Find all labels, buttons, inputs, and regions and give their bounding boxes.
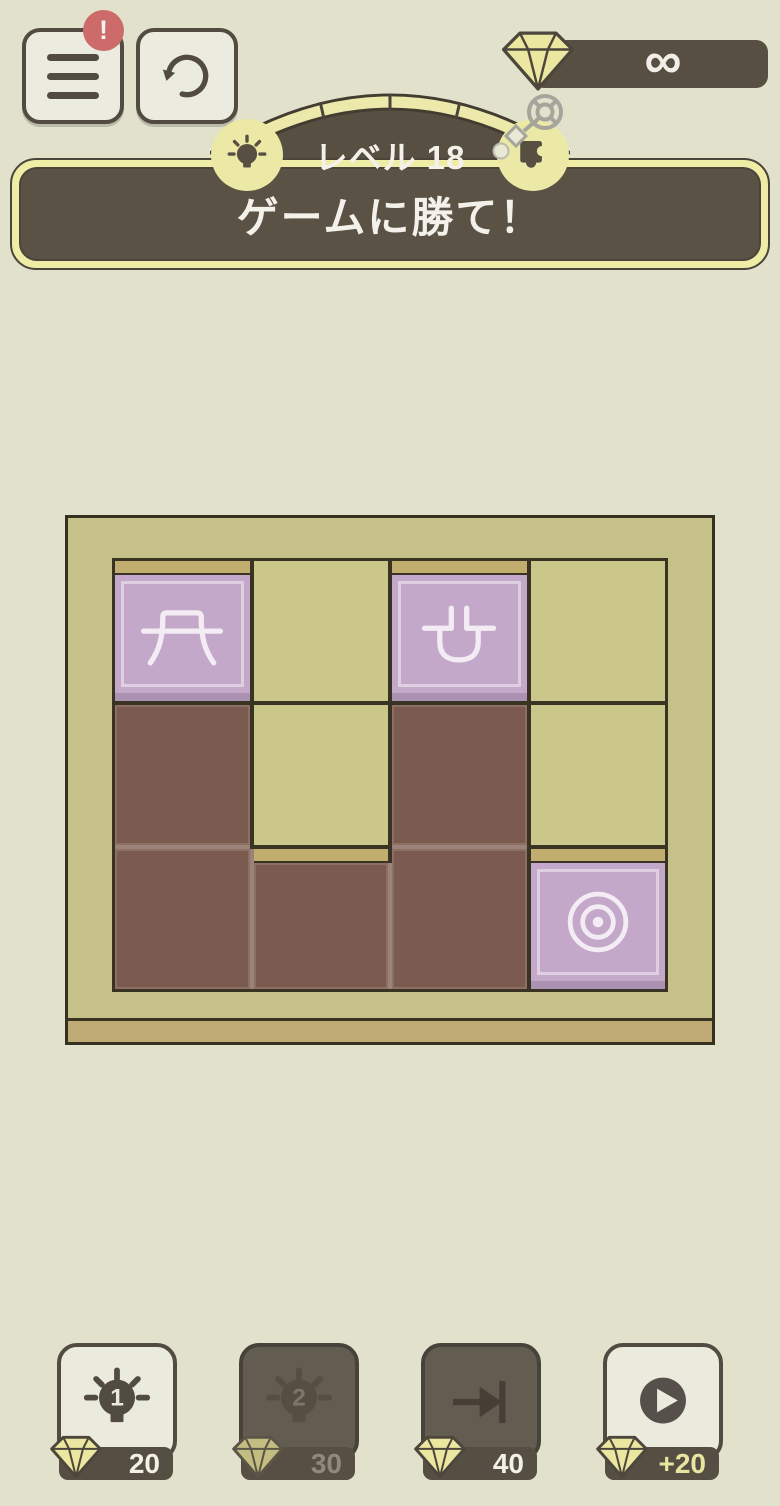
block-tile[interactable] (115, 849, 254, 989)
board-cell (531, 561, 666, 701)
hint-badge (211, 119, 283, 191)
gem-count-value: ∞ (618, 39, 681, 83)
block-tile[interactable] (254, 863, 393, 989)
gem-icon (229, 1433, 287, 1481)
block-tile[interactable] (392, 705, 527, 849)
board-cell (531, 705, 666, 845)
board-grid (112, 558, 668, 992)
gear-charm-doodle (483, 84, 583, 172)
plug-symbol-icon (411, 586, 507, 682)
play-icon (626, 1365, 700, 1439)
board-cell (392, 561, 527, 701)
board-cell (115, 849, 250, 989)
hamburger-icon (47, 54, 99, 99)
hint-2-button[interactable]: 2 30 (239, 1343, 359, 1483)
board-cell (392, 849, 527, 989)
board-cell (531, 849, 666, 989)
board-cell (254, 849, 389, 989)
svg-text:2: 2 (292, 1385, 306, 1412)
game-board (65, 515, 715, 1045)
gem-icon (47, 1433, 105, 1481)
board-cell (254, 561, 389, 701)
lightbulb-icon (223, 131, 271, 179)
powerup-bar: 1 20 2 30 (57, 1343, 723, 1483)
task-text: ゲームに勝て！ (237, 184, 544, 245)
bulb-1-icon: 1 (81, 1366, 153, 1438)
bulb-2-icon: 2 (263, 1366, 335, 1438)
plug-symbol-piece[interactable] (392, 575, 527, 701)
board-cell (115, 561, 250, 701)
hint-1-button[interactable]: 1 20 (57, 1343, 177, 1483)
block-tile[interactable] (115, 705, 250, 849)
level-label: レベル 18 (280, 131, 500, 179)
notification-badge: ! (83, 10, 124, 51)
svg-text:1: 1 (110, 1385, 124, 1412)
board-cell (254, 705, 389, 845)
arch-symbol-piece[interactable] (115, 575, 250, 701)
arch-symbol-icon (134, 586, 230, 682)
bullseye-icon (550, 874, 646, 970)
get-gems-button[interactable]: +20 (603, 1343, 723, 1483)
gem-icon (593, 1433, 651, 1481)
skip-level-button[interactable]: 40 (421, 1343, 541, 1483)
board-base-edge (68, 1018, 712, 1042)
skip-to-end-icon (446, 1367, 516, 1437)
board-cell (392, 705, 527, 845)
block-tile[interactable] (392, 849, 527, 989)
undo-icon (157, 46, 217, 106)
bullseye-target-tile[interactable] (531, 863, 666, 989)
gem-icon (411, 1433, 469, 1481)
board-cell (115, 705, 250, 845)
